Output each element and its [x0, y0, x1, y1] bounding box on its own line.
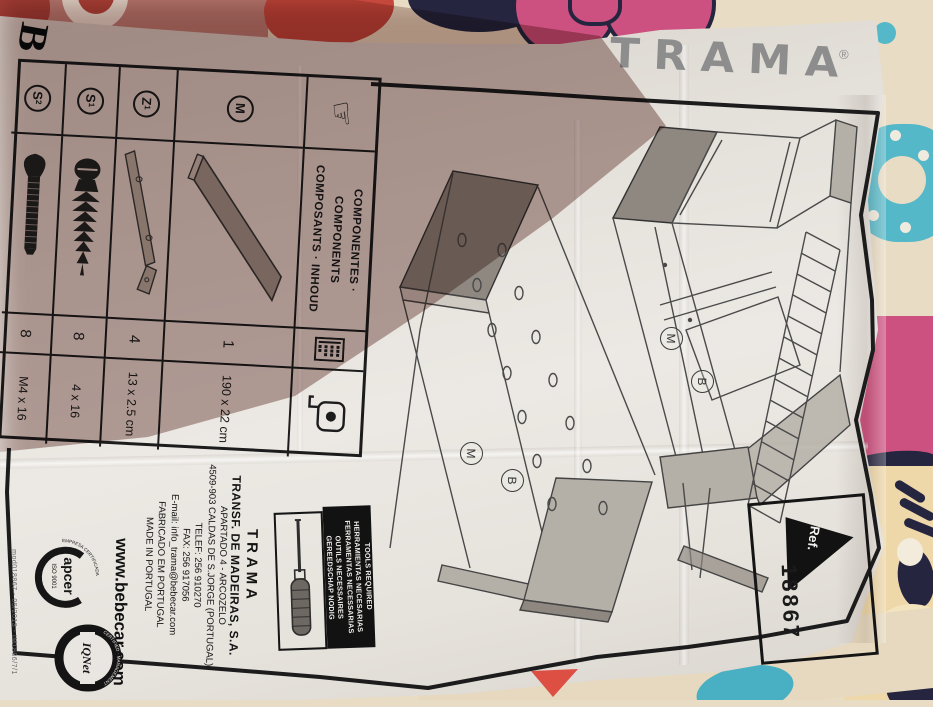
screwdriver-box [274, 511, 328, 651]
part-label-cell: Z1 [115, 67, 177, 142]
screwdriver-icon [276, 513, 325, 647]
part-label-s1: S1 [77, 86, 105, 114]
quantity-cell: 8 [50, 316, 106, 359]
part-drawing-cell [52, 136, 115, 319]
part-label-cell: M [173, 70, 307, 149]
size-cell: 4 x 16 [45, 356, 104, 447]
hand-icon-cell: ☞ [303, 77, 379, 153]
tape-measure-icon [305, 394, 347, 434]
part-label-s2: S2 [24, 84, 52, 112]
certification-logos: apcer ISO 9001 EMPRESA CERTIFICADA IQNet… [16, 512, 146, 707]
board-icon [167, 143, 302, 325]
quantity-cell: 8 [0, 313, 52, 356]
components-table: ☞ COMPONENTES · COMPONENTS COMPOSANTS · … [0, 59, 382, 458]
iqnet-logo: IQNet CERTIFIED · MANAGEMENT SYSTEM [59, 584, 146, 687]
part-label-m: M [227, 94, 255, 122]
ref-number: 18867 [775, 547, 805, 658]
ref-triangle [750, 496, 875, 661]
quantity-column-header [291, 329, 365, 373]
table-title: COMPONENTES · COMPONENTS COMPOSANTS · IN… [293, 149, 374, 333]
size-column-header [287, 368, 364, 460]
part-label-cell: S2 [11, 62, 65, 137]
red-fabric-mark [531, 669, 578, 697]
svg-text:apcer: apcer [61, 557, 77, 595]
part-drawing-cell [164, 142, 303, 329]
part-label-cell: S1 [61, 64, 119, 139]
tally-sheet-icon [314, 337, 345, 363]
machine-screw-icon [8, 148, 56, 300]
bracket-icon [110, 140, 171, 318]
tools-required-box: TOOLS REQUIRED HERRAMIENTAS NECESARIAS F… [323, 505, 376, 649]
screw-icon [59, 150, 111, 302]
part-drawing-cell [106, 139, 173, 322]
size-cell: M4 x 16 [0, 353, 50, 443]
photo-of-instruction-sheet: B TRAMA® ☞ COMPONENTES · COMPONENTS COMP… [0, 0, 933, 700]
pointing-hand-icon: ☞ [323, 98, 361, 129]
ref-box: Ref. 18867 [747, 493, 879, 665]
tools-required-text: TOOLS REQUIRED HERRAMIENTAS NECESARIAS F… [323, 505, 376, 649]
svg-text:IQNet: IQNet [80, 642, 94, 674]
quantity-cell: 1 [162, 322, 294, 369]
part-drawing-cell [2, 133, 61, 315]
assembly-diagram-step [390, 171, 655, 622]
part-label-z1: Z1 [133, 89, 161, 117]
apcer-logo: apcer ISO 9001 EMPRESA CERTIFICADA [38, 538, 100, 604]
manufacturer-block: TRAMA TRANSF. DE MADEIRAS, S.A. APARTADO… [128, 428, 263, 702]
quantity-cell: 4 [104, 319, 164, 362]
svg-text:ISO 9001: ISO 9001 [50, 563, 56, 589]
